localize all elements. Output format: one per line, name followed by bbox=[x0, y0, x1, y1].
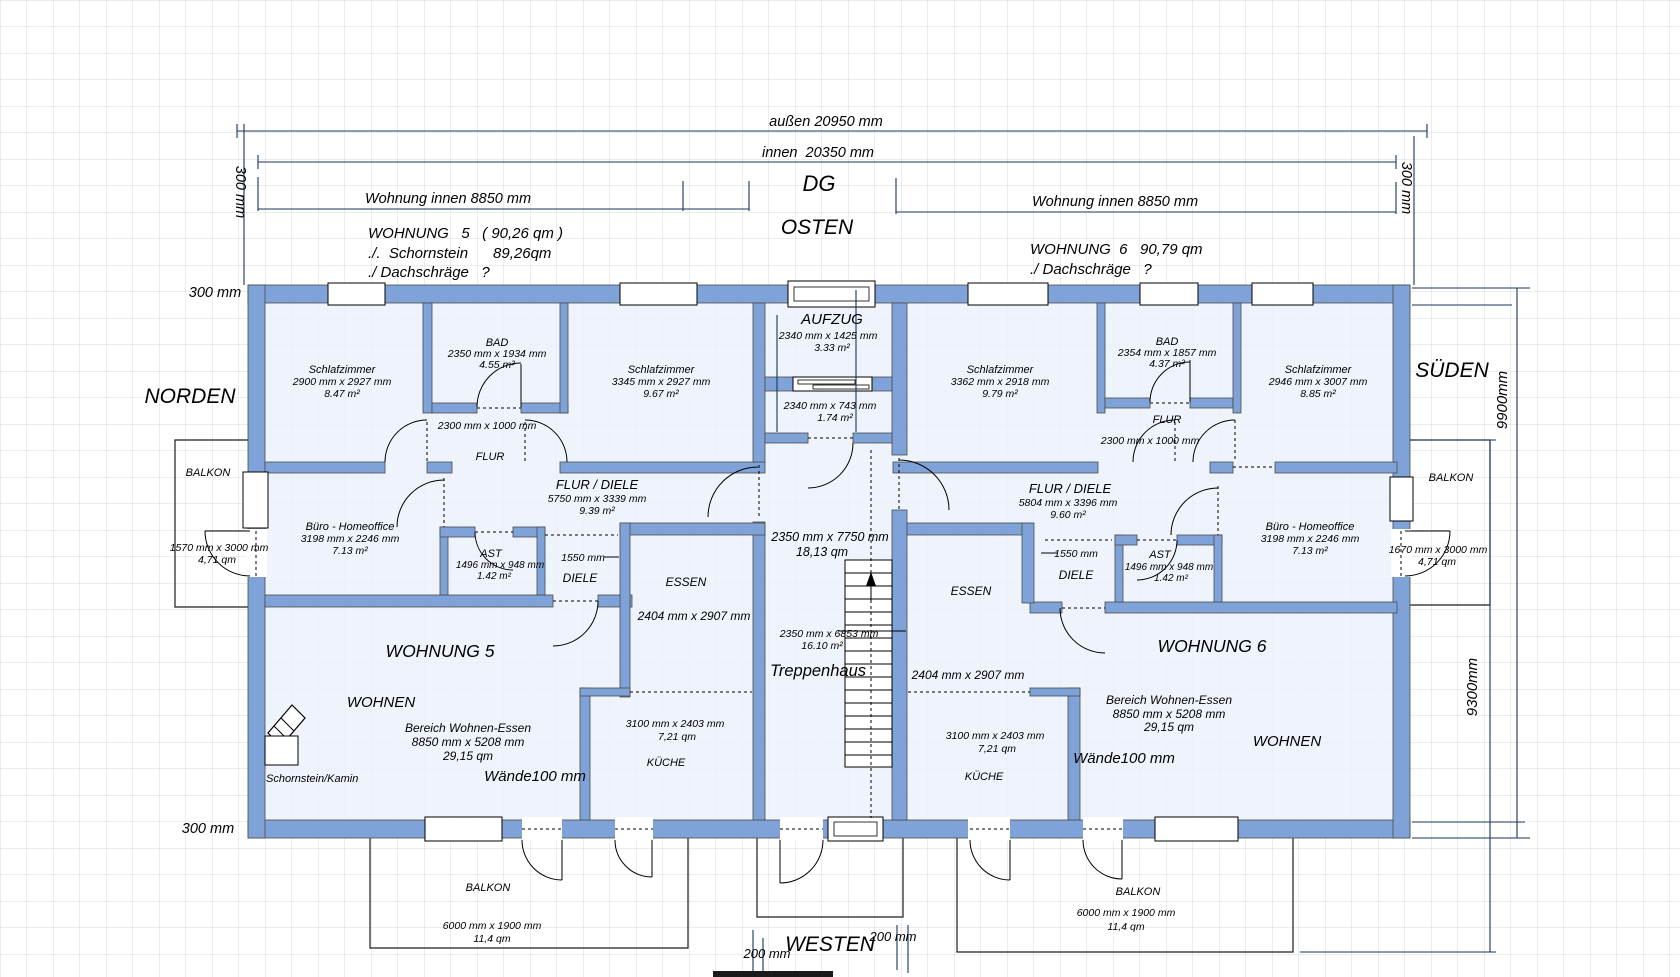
window bbox=[620, 283, 697, 305]
elevator-door-panel bbox=[798, 380, 855, 384]
wall-segment bbox=[872, 377, 892, 391]
room-label: WOHNEN bbox=[1253, 733, 1321, 750]
room-area: 1.42 m² bbox=[477, 571, 512, 582]
wall-segment bbox=[1022, 523, 1034, 603]
balcony-label: BALKON bbox=[466, 882, 511, 894]
dim-label-diele-width: 1550 mm bbox=[1054, 548, 1098, 560]
room-area: 9.67 m² bbox=[643, 388, 679, 400]
balcony-dims: 1670 mm x 3000 mm bbox=[1389, 544, 1488, 556]
balcony-area: 11,4 qm bbox=[473, 933, 510, 945]
room-label: KÜCHE bbox=[647, 757, 686, 769]
room-dims: 1496 mm x 948 mm bbox=[456, 560, 544, 571]
room-area: 16.10 m² bbox=[801, 640, 843, 652]
room-area: 4.55 m² bbox=[479, 359, 515, 371]
room-label: FLUR / DIELE bbox=[1029, 481, 1112, 496]
room-area: 9.60 m² bbox=[1050, 509, 1086, 521]
room-dims: 3362 mm x 2918 mm bbox=[951, 376, 1050, 388]
room-dims: 2350 mm x 7750 mm bbox=[770, 530, 888, 544]
room-label: Büro - Homeoffice bbox=[1266, 521, 1355, 533]
room-area: 7,21 qm bbox=[978, 743, 1016, 755]
apt5-title-line2: ./. Schornstein 89,26qm bbox=[368, 245, 551, 262]
room-area: 9.79 m² bbox=[982, 388, 1018, 400]
elevator-symbol bbox=[793, 377, 872, 391]
wall-segment bbox=[1275, 462, 1397, 473]
room-area: 1.42 m² bbox=[1154, 573, 1189, 584]
elevator-door-panel bbox=[813, 385, 869, 389]
wall-segment bbox=[1190, 398, 1233, 408]
balcony-label: BALKON bbox=[1116, 886, 1161, 898]
room-dims: 3100 mm x 2403 mm bbox=[946, 730, 1045, 742]
walls-note: Wände100 mm bbox=[1073, 750, 1175, 767]
wall-segment bbox=[765, 377, 793, 391]
dim-label-wall-left-bottom: 300 mm bbox=[182, 821, 234, 837]
chimney-base bbox=[265, 736, 298, 765]
room-dims: 2340 mm x 1425 mm bbox=[778, 330, 878, 342]
wall-core-right-lower bbox=[892, 510, 907, 820]
zone-dims: 8850 mm x 5208 mm bbox=[412, 735, 525, 749]
room-label: AUFZUG bbox=[800, 311, 863, 328]
balcony-label: BALKON bbox=[1429, 472, 1474, 484]
wall-segment bbox=[427, 462, 452, 473]
room-dims: 2404 mm x 2907 mm bbox=[637, 609, 751, 623]
window bbox=[1140, 283, 1198, 305]
room-label: FLUR bbox=[476, 451, 505, 463]
wall-segment bbox=[560, 462, 765, 473]
balcony-dims: 6000 mm x 1900 mm bbox=[1077, 907, 1176, 919]
window-stairwell bbox=[828, 817, 883, 841]
wall-segment bbox=[853, 433, 892, 443]
dim-label-gap-left: 200 mm bbox=[743, 946, 791, 961]
room-dims: 2900 mm x 2927 mm bbox=[292, 376, 392, 388]
wall-segment bbox=[440, 527, 475, 537]
zone-area: 29,15 qm bbox=[1143, 720, 1194, 734]
room-dims: 2300 mm x 1000 mm bbox=[437, 420, 537, 432]
wall-segment bbox=[893, 462, 1098, 473]
apt5-title-line1: WOHNUNG 5 ( 90,26 qm ) bbox=[368, 225, 563, 242]
room-label: DIELE bbox=[563, 571, 599, 585]
room-label: Schlafzimmer bbox=[628, 364, 696, 376]
room-label: KÜCHE bbox=[965, 771, 1004, 783]
window-elevator-shaft bbox=[788, 281, 875, 307]
compass-north: NORDEN bbox=[144, 385, 236, 408]
wall-segment bbox=[423, 303, 432, 413]
wall-core-right-upper bbox=[892, 303, 907, 455]
window bbox=[243, 472, 268, 528]
room-dims: 5750 mm x 3339 mm bbox=[548, 493, 647, 505]
room-label: ESSEN bbox=[951, 584, 992, 598]
compass-south: SÜDEN bbox=[1415, 359, 1489, 382]
wall-segment bbox=[265, 462, 385, 473]
balcony-label: BALKON bbox=[186, 467, 231, 479]
room-label: Schlafzimmer bbox=[1285, 364, 1353, 376]
wall-segment bbox=[620, 523, 630, 697]
dim-label-diele-width: 1550 mm bbox=[561, 552, 605, 564]
floorplan-drawing: außen 20950 mm innen 20350 mm Wohnung in… bbox=[0, 0, 1680, 977]
chimney-label: Schornstein/Kamin bbox=[266, 773, 358, 785]
window bbox=[1252, 283, 1313, 305]
room-label: FLUR bbox=[1153, 414, 1182, 426]
dim-label-wall-top-left: 300 mm bbox=[232, 166, 248, 218]
wall-segment bbox=[1115, 535, 1137, 545]
compass-west: WESTEN bbox=[785, 933, 876, 956]
wall-segment bbox=[432, 403, 477, 413]
room-dims: 2350 mm x 6853 mm bbox=[779, 628, 879, 640]
apartment-name: WOHNUNG 5 bbox=[386, 641, 495, 661]
zone-label: Bereich Wohnen-Essen bbox=[405, 721, 531, 735]
dim-label-height-inner: 9300mm bbox=[1464, 658, 1481, 716]
room-area: 1.74 m² bbox=[817, 412, 853, 424]
balcony-area: 4,71 qm bbox=[1418, 556, 1456, 568]
dim-label-outer-width: außen 20950 mm bbox=[769, 114, 883, 130]
wall-segment bbox=[907, 523, 1030, 535]
dim-label-gap-right: 200 mm bbox=[869, 929, 917, 944]
room-dims: 3100 mm x 2403 mm bbox=[626, 718, 725, 730]
room-dims: 3345 mm x 2927 mm bbox=[612, 376, 711, 388]
wall-segment bbox=[1233, 303, 1241, 413]
room-dims: 2340 mm x 743 mm bbox=[783, 400, 877, 412]
room-label: Büro - Homeoffice bbox=[306, 521, 395, 533]
apt6-title-line1: WOHNUNG 6 90,79 qm bbox=[1030, 241, 1203, 258]
wall-segment bbox=[1030, 602, 1062, 613]
balcony-area: 11,4 qm bbox=[1107, 921, 1144, 933]
wall-segment bbox=[1105, 602, 1397, 613]
cutoff-element bbox=[713, 971, 833, 977]
wall-segment bbox=[1105, 398, 1150, 408]
room-area: 3.33 m² bbox=[814, 342, 850, 354]
zone-label: Bereich Wohnen-Essen bbox=[1106, 693, 1232, 707]
wall-segment bbox=[765, 433, 808, 443]
room-area: 8.85 m² bbox=[1300, 388, 1336, 400]
zone-area: 29,15 qm bbox=[442, 749, 493, 763]
apartment-name: WOHNUNG 6 bbox=[1158, 636, 1267, 656]
dim-label-height-outer: 9900mm bbox=[1494, 371, 1511, 429]
room-area: 9.39 m² bbox=[579, 505, 615, 517]
room-area: 18,13 qm bbox=[796, 545, 848, 559]
window bbox=[425, 817, 502, 841]
room-area: 7,21 qm bbox=[658, 731, 696, 743]
window bbox=[1390, 477, 1413, 521]
apt5-title-line3: ./ Dachschräge ? bbox=[368, 264, 490, 281]
room-label: Schlafzimmer bbox=[309, 364, 377, 376]
room-dims: 5804 mm x 3396 mm bbox=[1019, 497, 1118, 509]
room-label: ESSEN bbox=[666, 575, 707, 589]
room-label: Treppenhaus bbox=[770, 662, 866, 680]
room-label: FLUR / DIELE bbox=[556, 477, 639, 492]
wall-segment bbox=[265, 595, 553, 607]
walls-note: Wände100 mm bbox=[484, 768, 586, 785]
window bbox=[968, 283, 1048, 305]
room-label: Schlafzimmer bbox=[967, 364, 1035, 376]
room-label: WOHNEN bbox=[347, 694, 415, 711]
zone-dims: 8850 mm x 5208 mm bbox=[1113, 707, 1226, 721]
dim-label-apt6-width: Wohnung innen 8850 mm bbox=[1032, 194, 1198, 210]
wall-segment bbox=[1210, 462, 1233, 473]
wall-segment bbox=[1097, 303, 1105, 413]
room-area: 7.13 m² bbox=[1292, 545, 1328, 557]
room-area: 7.13 m² bbox=[332, 545, 368, 557]
window bbox=[1155, 817, 1238, 841]
wall-core-left-lower bbox=[753, 522, 765, 820]
compass-east: OSTEN bbox=[781, 216, 854, 239]
room-area: 4.37 m² bbox=[1149, 358, 1185, 370]
wall-core-left-upper bbox=[753, 303, 765, 462]
room-dims: 1496 mm x 948 mm bbox=[1125, 562, 1213, 573]
wall-segment bbox=[580, 688, 590, 820]
dim-label-wall-left-top: 300 mm bbox=[189, 285, 241, 301]
room-label: DIELE bbox=[1059, 568, 1095, 582]
room-label: AST bbox=[1148, 549, 1172, 561]
window bbox=[328, 283, 385, 305]
dim-label-apt5-width: Wohnung innen 8850 mm bbox=[365, 191, 531, 207]
floor-label: DG bbox=[803, 171, 836, 196]
balcony-area: 4,71 qm bbox=[198, 554, 236, 566]
floorplan-canvas: außen 20950 mm innen 20350 mm Wohnung in… bbox=[0, 0, 1680, 977]
wall-segment bbox=[620, 523, 765, 535]
wall-segment bbox=[1214, 535, 1222, 602]
room-dims: 3198 mm x 2246 mm bbox=[1261, 533, 1360, 545]
dim-label-wall-top-right: 300 mm bbox=[1398, 162, 1414, 214]
wall-segment bbox=[560, 303, 568, 413]
room-area: 8.47 m² bbox=[324, 388, 360, 400]
room-dims: 2404 mm x 2907 mm bbox=[911, 668, 1025, 682]
room-dims: 2946 mm x 3007 mm bbox=[1268, 376, 1368, 388]
dim-label-inner-width: innen 20350 mm bbox=[762, 145, 874, 161]
balcony-dims: 1570 mm x 3000 mm bbox=[170, 542, 269, 554]
wall-segment bbox=[1030, 688, 1080, 696]
room-dims: 2300 mm x 1000 mm bbox=[1100, 435, 1200, 447]
wall-segment bbox=[580, 688, 630, 696]
apt6-title-line2: ./ Dachschräge ? bbox=[1030, 261, 1152, 278]
room-label: AST bbox=[479, 548, 503, 560]
room-dims: 3198 mm x 2246 mm bbox=[301, 533, 400, 545]
balcony-dims: 6000 mm x 1900 mm bbox=[443, 920, 542, 932]
